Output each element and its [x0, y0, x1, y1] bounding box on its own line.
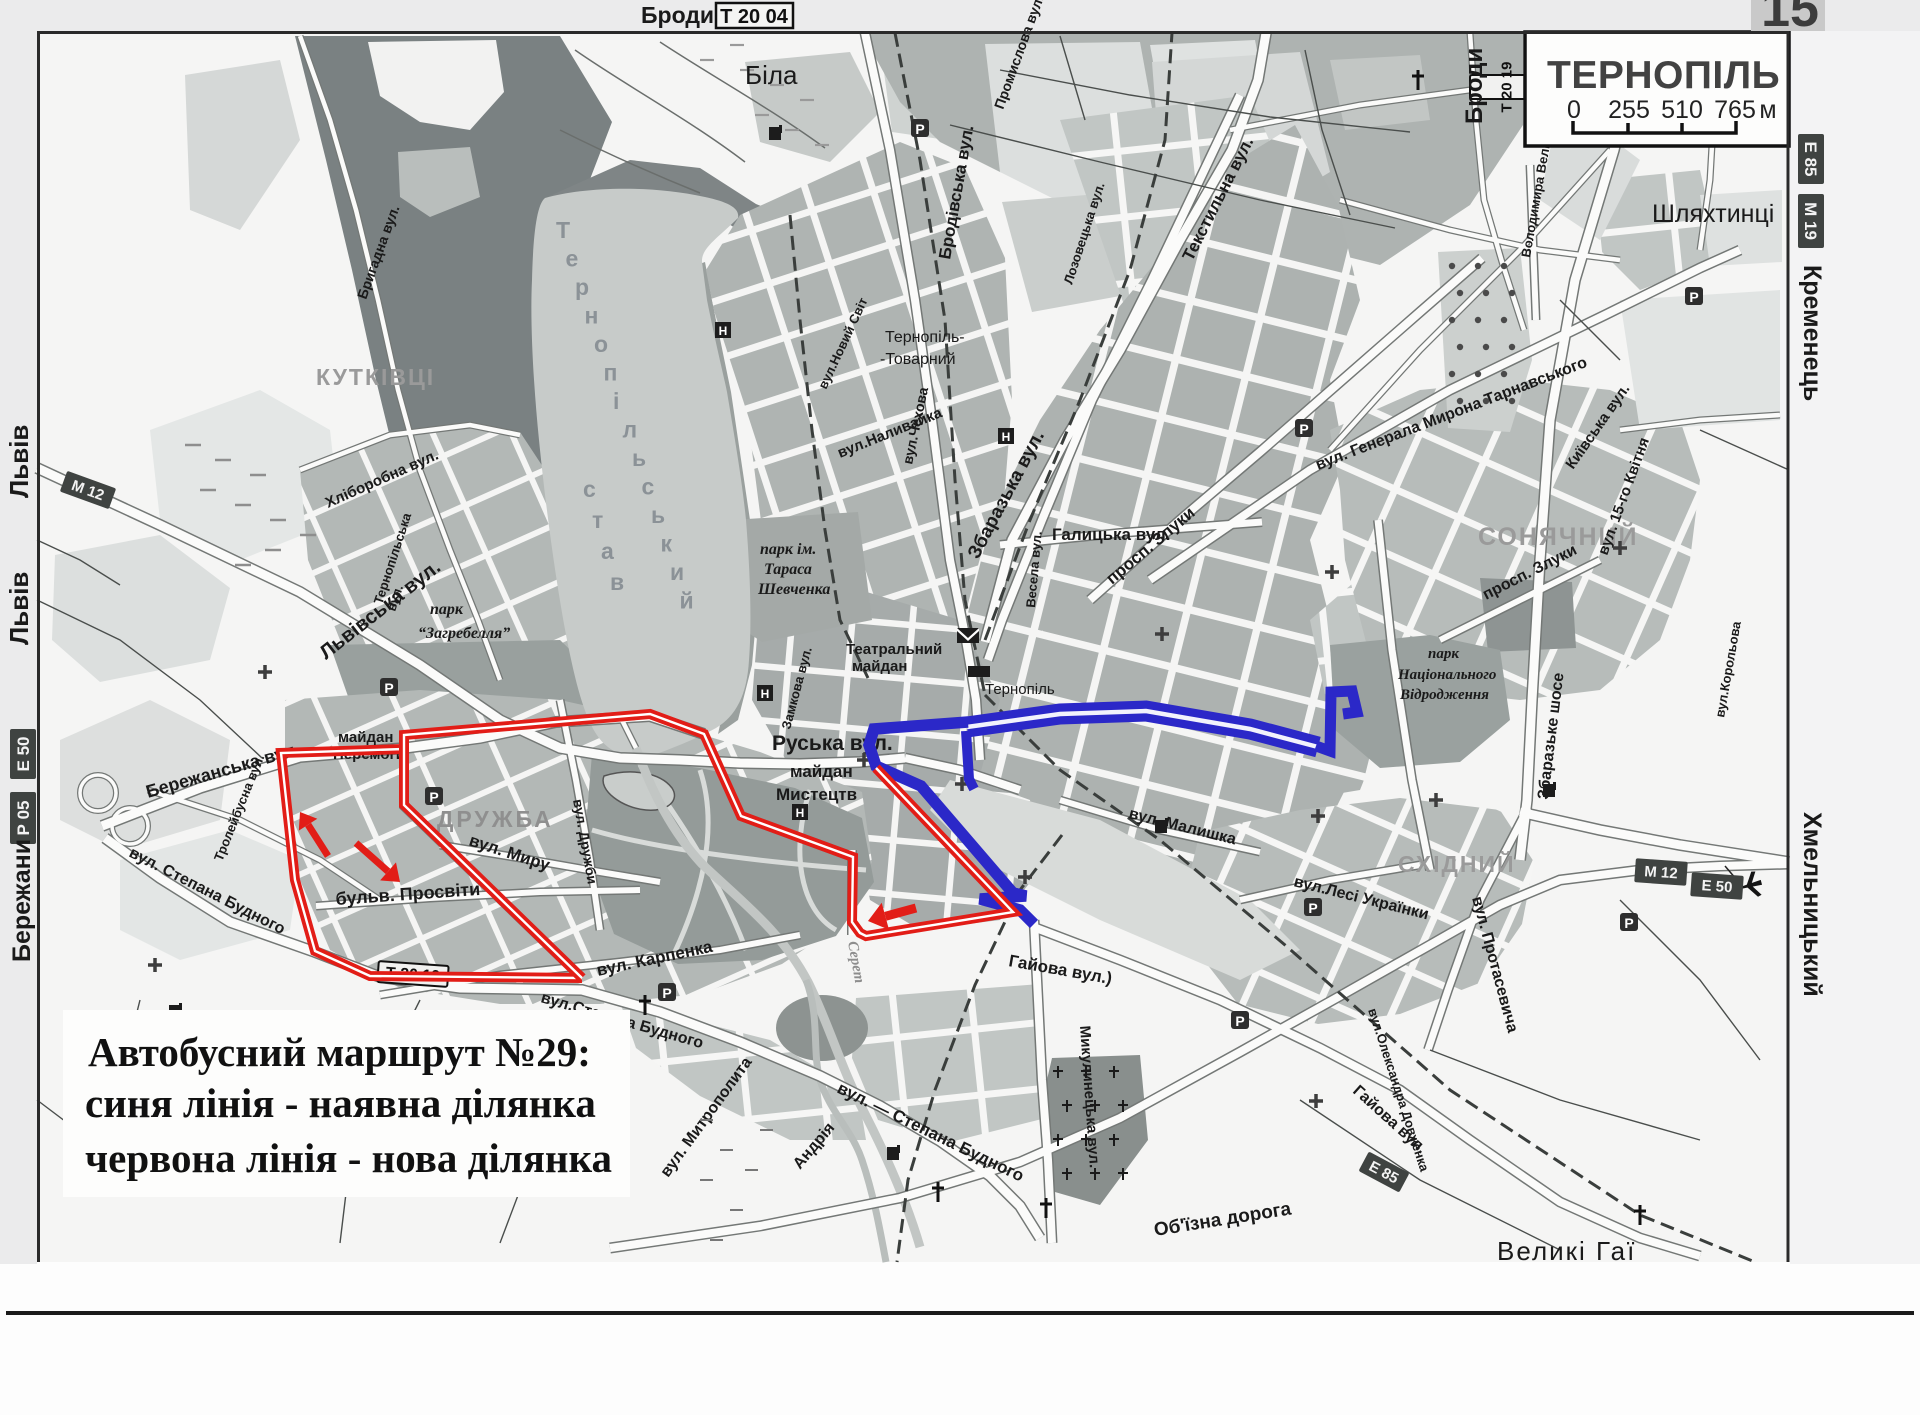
svg-text:Театральний: Театральний	[846, 641, 942, 658]
svg-text:ь: ь	[632, 445, 646, 471]
svg-text:P: P	[1689, 289, 1698, 305]
svg-text:н: н	[585, 303, 599, 329]
svg-text:т: т	[592, 507, 603, 533]
svg-text:Тараса: Тараса	[764, 561, 812, 578]
svg-text:л: л	[623, 417, 638, 443]
svg-text:Броди: Броди	[641, 2, 714, 28]
svg-text:с: с	[583, 476, 596, 502]
svg-text:P: P	[662, 985, 671, 1001]
svg-text:ДРУЖБА: ДРУЖБА	[437, 806, 554, 832]
svg-text:H: H	[719, 324, 728, 338]
svg-text:п: п	[604, 360, 618, 386]
svg-text:ТЕРНОПІЛЬ: ТЕРНОПІЛЬ	[1547, 54, 1780, 97]
svg-text:о: о	[594, 331, 608, 357]
svg-text:510: 510	[1661, 96, 1703, 124]
svg-text:Т: Т	[556, 217, 570, 243]
svg-text:майдан: майдан	[852, 658, 907, 675]
svg-text:и: и	[670, 559, 684, 585]
svg-text:P: P	[915, 121, 924, 137]
svg-text:Е 50: Е 50	[1701, 877, 1733, 896]
svg-text:ь: ь	[651, 502, 665, 528]
svg-text:е: е	[566, 246, 579, 272]
svg-text:майдан: майдан	[338, 729, 393, 746]
svg-text:-Товарний: -Товарний	[880, 351, 956, 368]
svg-text:КУТКІВЦІ: КУТКІВЦІ	[316, 364, 435, 390]
svg-text:синя лінія - наявна ділянка: синя лінія - наявна ділянка	[85, 1080, 596, 1126]
svg-text:в: в	[610, 569, 624, 595]
svg-text:P: P	[429, 789, 438, 805]
svg-text:P: P	[1308, 900, 1317, 916]
svg-text:парк ім.: парк ім.	[760, 541, 816, 558]
svg-text:червона лінія - нова ділянка: червона лінія - нова ділянка	[85, 1135, 612, 1181]
svg-text:P: P	[1299, 421, 1308, 437]
svg-text:а: а	[601, 538, 614, 564]
svg-text:Тернопіль: Тернопіль	[985, 681, 1055, 698]
svg-text:Львів: Львів	[4, 425, 34, 498]
svg-text:Шевченка: Шевченка	[757, 581, 830, 598]
svg-text:парк: парк	[430, 601, 464, 618]
svg-text:H: H	[1002, 430, 1011, 444]
svg-text:парк: парк	[1428, 646, 1459, 662]
svg-text:й: й	[680, 588, 694, 614]
svg-text:Хмельницький: Хмельницький	[1798, 812, 1826, 997]
svg-text:P: P	[1624, 915, 1633, 931]
svg-text:Кременець: Кременець	[1798, 265, 1826, 401]
svg-text:р: р	[575, 274, 589, 300]
svg-text:к: к	[661, 531, 673, 557]
svg-text:H: H	[761, 687, 770, 701]
svg-text:Тернопіль-: Тернопіль-	[885, 329, 965, 346]
svg-text:Шляхтинці: Шляхтинці	[1652, 200, 1774, 228]
svg-text:Е 85: Е 85	[1801, 142, 1820, 177]
svg-text:с: с	[642, 474, 655, 500]
svg-text:H: H	[796, 806, 805, 820]
svg-text:Львів: Львів	[4, 572, 34, 645]
svg-text:і: і	[613, 388, 619, 414]
svg-text:майдан: майдан	[790, 762, 853, 781]
svg-text:Автобусний маршрут №29:: Автобусний маршрут №29:	[88, 1029, 591, 1075]
svg-text:Відродження: Відродження	[1399, 687, 1489, 703]
svg-text:Національного: Національного	[1397, 667, 1496, 683]
svg-text:М 12: М 12	[1644, 863, 1678, 882]
svg-text:СХІДНИЙ: СХІДНИЙ	[1398, 850, 1516, 877]
svg-text:“Загребелля”: “Загребелля”	[418, 625, 510, 642]
svg-text:м: м	[1759, 96, 1776, 124]
svg-text:Бережани: Бережани	[8, 839, 36, 962]
svg-text:Броди: Броди	[1461, 48, 1488, 124]
svg-text:Т 20 19: Т 20 19	[1498, 62, 1515, 113]
svg-text:765: 765	[1714, 96, 1756, 124]
svg-text:P: P	[384, 680, 393, 696]
svg-text:Т 20 04: Т 20 04	[720, 6, 789, 28]
svg-text:Великі Гаї: Великі Гаї	[1497, 1236, 1636, 1266]
svg-text:Е 50: Е 50	[14, 737, 33, 772]
svg-text:Мистецтв: Мистецтв	[776, 785, 857, 804]
svg-text:255: 255	[1608, 96, 1650, 124]
svg-text:Р 05: Р 05	[14, 801, 33, 836]
svg-text:0: 0	[1567, 96, 1581, 124]
svg-text:P: P	[1235, 1013, 1244, 1029]
svg-text:Біла: Біла	[745, 60, 798, 90]
svg-text:М 19: М 19	[1801, 202, 1820, 240]
